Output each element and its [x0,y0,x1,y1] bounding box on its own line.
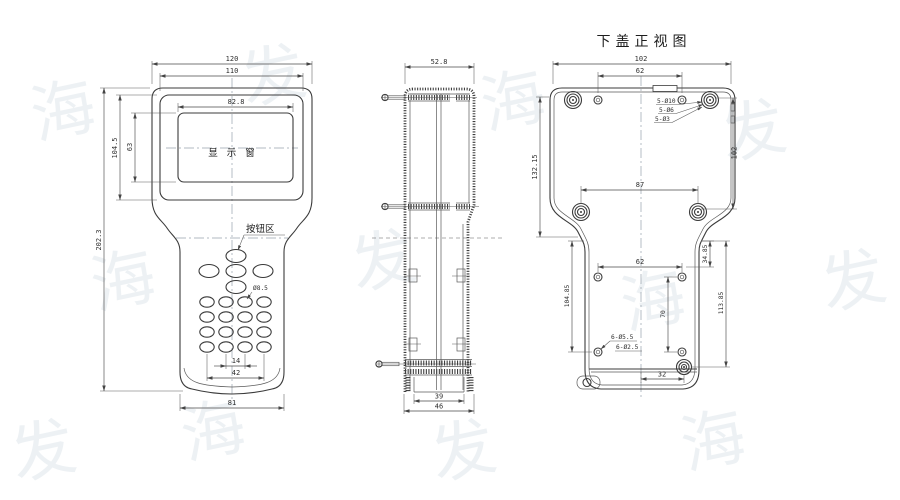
dim-battery-outer-width: 46 [435,403,443,411]
dim-left-height: 132.15 [531,154,539,179]
bottom-cover-title: 下盖正视图 [597,34,692,50]
dim-overall-height: 202.3 [95,229,103,250]
screw-boss [690,204,707,221]
dim-key-pitch: 14 [232,357,240,365]
hole-outer [678,348,686,356]
small-holes [594,96,686,356]
key-ellipse [200,312,214,322]
dim-window-height: 63 [126,143,134,151]
key-ellipse [219,327,233,337]
key-ellipse [238,297,252,307]
technical-drawing: 海发海发海发海发海发海发 显示窗 按钮区 [0,0,900,500]
hole-outer [678,273,686,281]
hole-inner [596,350,600,354]
small-hole [594,273,602,281]
dim-right-boss-height: 113.85 [718,292,725,315]
note-corner-boss-outer: 5-Ø10 [657,97,676,105]
keypad [199,250,273,353]
button-area-leader [238,235,244,250]
side-boss-band-mid [381,203,479,210]
dim-top-hole-span: 62 [636,67,644,75]
small-hole [678,348,686,356]
hole-inner [680,98,684,102]
note-corner-boss-hole: 5-Ø3 [655,115,670,123]
hole-outer [678,96,686,104]
key-ellipse [219,297,233,307]
side-internal-bosses [404,269,470,351]
boss-center [572,99,574,101]
key-ellipse [200,297,214,307]
boss-center [697,211,699,213]
side-battery-area [377,360,476,393]
key-ellipse [219,342,233,352]
boss-center [683,366,685,368]
hole-inner [680,350,684,354]
dim-bottom-boss-offset: 32 [658,371,666,379]
dim-upper-right-offset: 34.85 [702,244,709,263]
hole-inner [596,275,600,279]
key-ellipse [226,250,246,263]
hole-outer [594,96,602,104]
note-corner-boss-mid: 5-Ø6 [659,106,674,114]
key-ellipse [200,342,214,352]
hole-inner [680,275,684,279]
dim-mid-hole-span: 62 [636,258,644,266]
screw-boss [702,92,719,109]
bottom-cover-outer-outline [550,88,735,389]
boss-center [709,99,711,101]
dim-overall-width: 120 [226,55,239,63]
inner-boss-notes: 6-Ø5.5 6-Ø2.5 [601,333,642,351]
dim-right-height: 102 [731,147,739,160]
key-ellipse [200,327,214,337]
key-ellipse [257,297,271,307]
side-screws [376,94,405,367]
button-diameter-note: Ø8.5 [253,284,268,292]
key-ellipse [219,312,233,322]
bottom-cover-view: 下盖正视图 5-Ø10 5-Ø6 5-Ø3 [531,34,739,399]
key-ellipse [238,327,252,337]
small-hole [678,96,686,104]
button-area-label: 按钮区 [246,223,275,235]
side-outline-knurled [405,89,474,392]
dim-key-span: 42 [232,369,240,377]
key-ellipse [257,327,271,337]
screw-boss [573,204,590,221]
note-inner-boss-outer: 6-Ø5.5 [611,333,634,341]
dim-battery-inner-width: 39 [435,393,443,401]
hole-outer [594,348,602,356]
small-hole [678,273,686,281]
key-ellipse [257,342,271,352]
note-inner-boss-hole: 6-Ø2.5 [616,343,639,351]
dim-window-width: 82.8 [228,98,245,106]
dim-waist-boss-span: 87 [636,181,644,189]
small-hole [594,348,602,356]
bottom-cover-inner-outline [554,92,731,385]
screw-bosses [565,92,719,375]
front-view: 显示窗 按钮区 Ø8.5 120 [95,55,312,411]
top-edge-slot [653,86,677,92]
side-boss-band-top [381,94,477,101]
key-ellipse [226,265,246,278]
display-window-label: 显示窗 [208,147,264,159]
screw-boss [565,92,582,109]
dim-grip-width: 81 [228,399,236,407]
side-view: 52.8 39 46 [372,58,502,414]
dim-left-boss-height: 104.85 [564,285,571,308]
key-ellipse [257,312,271,322]
dim-mid-hole-height: 70 [660,310,667,318]
screw-boss [677,360,692,375]
key-ellipse [253,265,273,278]
key-ellipse [238,342,252,352]
key-ellipse [226,281,246,294]
key-ellipse [199,265,219,278]
hole-inner [596,98,600,102]
hole-outer [594,273,602,281]
boss-center [580,211,582,213]
dim-frame-width: 110 [226,67,239,75]
key-grid [200,297,271,352]
front-dimensions: 120 110 82.8 63 104.5 202.3 [95,55,312,411]
small-hole [594,96,602,104]
dim-depth: 52.8 [431,58,448,66]
drawing-svg: 显示窗 按钮区 Ø8.5 120 [0,0,900,500]
dim-top-width: 102 [635,55,648,63]
dim-frame-height: 104.5 [111,137,119,158]
bottom-cover-dimensions: 102 62 132.15 102 87 62 34.85 [531,55,739,383]
key-ellipse [238,312,252,322]
